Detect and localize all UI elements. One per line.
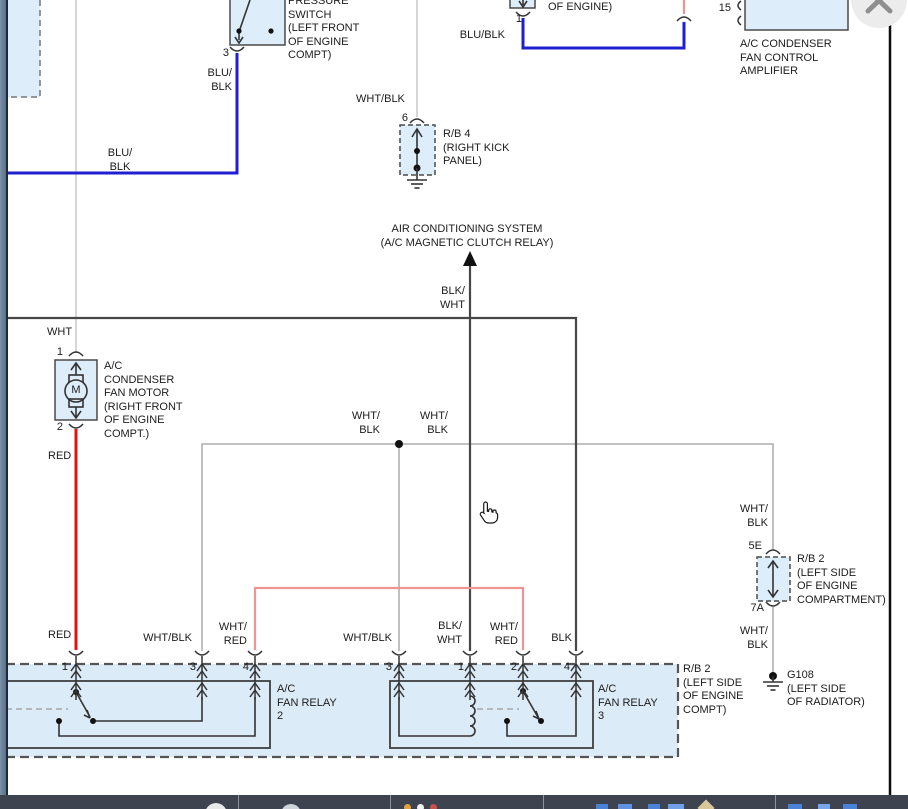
taskbar-app-icon-5[interactable]: [430, 804, 437, 809]
taskbar-app-icon-10[interactable]: [698, 800, 715, 809]
of-engine-label: OF ENGINE): [548, 1, 612, 15]
blk-wht-mid: BLK/ WHT: [440, 285, 465, 312]
blu-blk-mid: BLU/BLK: [460, 29, 505, 43]
pressure-switch-label: PRESSURE SWITCH (LEFT FRONT OF ENGINE CO…: [288, 0, 359, 63]
relay2-contact-dot: [56, 718, 62, 724]
motor-label: A/C CONDENSER FAN MOTOR (RIGHT FRONT OF …: [104, 360, 183, 441]
taskbar-app-icon-8[interactable]: [648, 804, 660, 809]
wht-blk-net-2: WHT/ BLK: [420, 410, 448, 437]
taskbar-separator: [543, 795, 544, 809]
ground-symbol-g108: [763, 676, 783, 690]
cutoff-component-box: [6, 0, 40, 97]
pin-3-relay3: 3: [386, 661, 392, 675]
pin-3-relay2: 3: [190, 661, 196, 675]
relay2-label: A/C FAN RELAY 2: [277, 683, 337, 724]
screen: PRESSURE SWITCH (LEFT FRONT OF ENGINE CO…: [0, 0, 908, 809]
wht-blk-pin3b: WHT/BLK: [343, 632, 392, 646]
pin-1-relay3: 1: [458, 661, 464, 675]
wht-red-pin2: WHT/ RED: [490, 621, 518, 648]
rb4-label: R/B 4 (RIGHT KICK PANEL): [443, 128, 509, 169]
connector-arc: [69, 352, 83, 356]
taskbar-app-icon-2[interactable]: [281, 804, 301, 809]
taskbar-app-icon-3[interactable]: [404, 804, 411, 809]
ac-system-label: AIR CONDITIONING SYSTEM (A/C MAGNETIC CL…: [381, 223, 554, 250]
taskbar: [0, 795, 908, 809]
connector-arc: [738, 16, 741, 25]
connector-arc: [766, 550, 780, 554]
switch-contact-dot: [236, 28, 241, 33]
wiring-diagram-canvas: PRESSURE SWITCH (LEFT FRONT OF ENGINE CO…: [0, 0, 908, 795]
taskbar-separator: [238, 795, 239, 809]
pin-1-relay2: 1: [62, 661, 68, 675]
rb2-upper-label: R/B 2 (LEFT SIDE OF ENGINE COMPARTMENT): [797, 553, 886, 607]
pin-6: 6: [402, 112, 408, 126]
taskbar-app-icon-4[interactable]: [417, 804, 424, 809]
taskbar-app-icon-7[interactable]: [618, 804, 632, 809]
taskbar-separator: [775, 795, 776, 809]
switch-contact-dot: [268, 28, 273, 33]
pin-4-relay3: 4: [564, 661, 570, 675]
rb2-bottom-label: R/B 2 (LEFT SIDE OF ENGINE COMPT): [683, 663, 744, 717]
offpage-arrow: [463, 251, 477, 266]
connector-arc: [766, 602, 780, 606]
wht-red-pin4a: WHT/ RED: [219, 621, 247, 648]
pin-7a: 7A: [751, 602, 764, 616]
wht-blk-g108: WHT/ BLK: [740, 625, 768, 652]
connector-arc: [69, 424, 83, 428]
relay2-contact-dot: [90, 718, 96, 724]
blu-blk-wire-mid: [523, 18, 684, 48]
wht-blk-rb2: WHT/ BLK: [740, 503, 768, 530]
blu-blk-switch: BLU/ BLK: [208, 67, 232, 94]
left-window-strip: [0, 0, 8, 795]
wht-blk-pin3a: WHT/BLK: [143, 632, 192, 646]
taskbar-app-icon-12[interactable]: [818, 804, 830, 809]
wht-blk-net-wire: [202, 444, 773, 651]
hand-cursor-icon: [480, 502, 497, 523]
blk-pin4: BLK: [551, 632, 572, 646]
connector-arc: [230, 47, 244, 51]
red-label-1: RED: [48, 450, 71, 464]
taskbar-app-icon-11[interactable]: [788, 804, 802, 809]
taskbar-app-icon-13[interactable]: [843, 804, 857, 809]
pin-1-top: 1: [516, 13, 522, 27]
amplifier-label: A/C CONDENSER FAN CONTROL AMPLIFIER: [740, 38, 832, 79]
pin-3-pressure: 3: [223, 47, 229, 61]
wht-label: WHT: [47, 326, 72, 340]
relay3-contact-dot: [504, 718, 510, 724]
pin-4-relay2: 4: [243, 661, 249, 675]
pin-1-motor: 1: [57, 346, 63, 360]
connector-arc: [410, 119, 424, 123]
taskbar-app-icon-9[interactable]: [668, 804, 684, 809]
taskbar-separator: [390, 795, 391, 809]
pin-5e: 5E: [749, 540, 762, 554]
relay3-contact-dot: [538, 718, 544, 724]
wht-blk-net-1: WHT/ BLK: [352, 410, 380, 437]
pin-2-motor: 2: [57, 421, 63, 435]
taskbar-app-icon-1[interactable]: [205, 803, 227, 809]
blk-wht-pin1: BLK/ WHT: [437, 620, 462, 647]
taskbar-app-icon-6[interactable]: [596, 804, 608, 809]
pin-2-relay3: 2: [511, 661, 517, 675]
junction-dot: [395, 440, 403, 448]
close-button[interactable]: [851, 0, 907, 28]
motor-m: M: [71, 384, 80, 398]
relay3-label: A/C FAN RELAY 3: [598, 683, 658, 724]
amplifier-box: [745, 0, 848, 30]
connector-arc: [677, 17, 691, 21]
connector-arc: [738, 1, 741, 10]
red-label-2: RED: [48, 629, 71, 643]
blu-blk-left: BLU/ BLK: [108, 147, 132, 174]
g108-label: G108 (LEFT SIDE OF RADIATOR): [787, 669, 865, 710]
pin-15: 15: [719, 2, 731, 16]
rb4-dot: [414, 148, 420, 154]
rb2-region-fill: [6, 664, 678, 757]
wht-blk-top: WHT/BLK: [356, 93, 405, 107]
